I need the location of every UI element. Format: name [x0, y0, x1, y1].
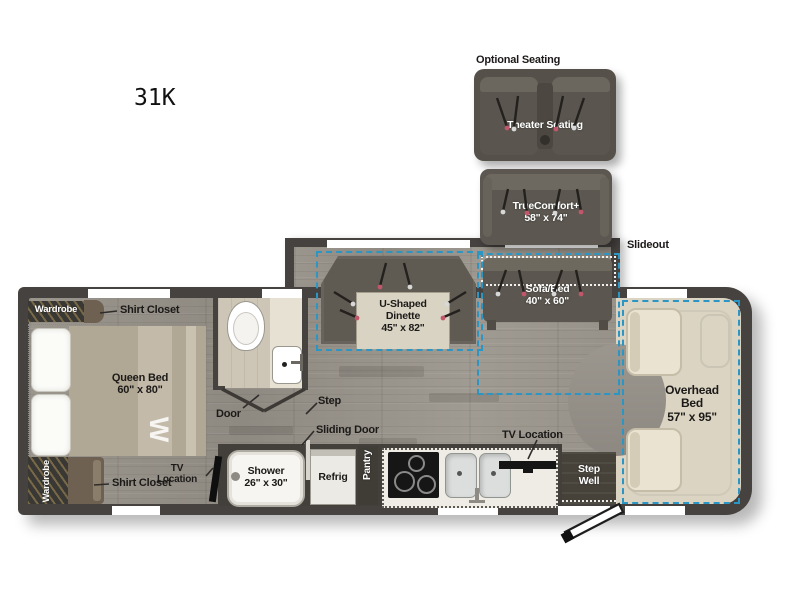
tv-location-kitchen-label: TV Location — [502, 429, 563, 441]
tv-kitchen — [499, 461, 556, 469]
step-well-label: Step Well — [562, 464, 616, 488]
toilet — [227, 301, 265, 351]
pillow — [31, 328, 71, 392]
window-slideout-left — [327, 240, 470, 248]
step-well: Step Well — [562, 452, 616, 504]
window-top-cab — [627, 289, 687, 298]
step-label: Step — [318, 395, 341, 407]
queen-bed-label: Queen Bed 60" x 80" — [80, 372, 200, 397]
sofa-slide-outline — [477, 253, 620, 395]
theater-seating: Theater Seating — [474, 69, 616, 161]
truecomfort-label: TrueComfort+ 58" x 74" — [480, 201, 612, 225]
shower-label: Shower 26" x 30" — [229, 466, 303, 490]
bath-wall-bottom — [213, 386, 225, 390]
overhead-bed-label: Overhead Bed 57" x 95" — [640, 384, 744, 424]
shirt-closet-bottom-cabinet — [68, 457, 104, 504]
optional-seating-heading: Optional Seating — [476, 54, 560, 66]
refrigerator: Refrig — [310, 449, 356, 505]
pantry: Pantry — [358, 446, 378, 505]
wardrobe-top: Wardrobe — [28, 301, 84, 322]
theater-seat-left — [480, 77, 538, 155]
wardrobe-top-label: Wardrobe — [28, 305, 84, 316]
refrig-label: Refrig — [311, 472, 355, 484]
pantry-label: Pantry — [362, 450, 373, 480]
sliding-door-label: Sliding Door — [316, 424, 379, 436]
sliding-door — [305, 440, 310, 480]
window-top-bedroom — [88, 289, 170, 298]
bath-wall-right — [302, 298, 308, 390]
window-bottom-cab — [625, 506, 685, 515]
theater-seating-label: Theater Seating — [474, 120, 616, 132]
dinette-slide-outline — [316, 251, 483, 351]
kitchen-sink-left — [445, 453, 477, 498]
kitchen-sink-right — [479, 453, 511, 498]
pillow — [31, 394, 71, 456]
wardrobe-bottom-label: Wardrobe — [42, 460, 53, 502]
theater-seat-right — [552, 77, 610, 155]
floorplan-page: 31K Optional Seating Theater Seating Tru… — [0, 0, 800, 600]
window-bottom-bedroom — [112, 506, 160, 515]
bed-monogram: W — [143, 417, 174, 442]
shirt-closet-top-label: Shirt Closet — [120, 304, 179, 316]
kitchen-counter — [382, 448, 558, 508]
truecomfort-sofa: TrueComfort+ 58" x 74" — [480, 169, 612, 245]
door-label: Door — [216, 408, 241, 420]
shirt-closet-top-cabinet — [84, 300, 104, 323]
shower: Shower 26" x 30" — [227, 450, 305, 507]
entry-door-opening — [558, 506, 610, 515]
slideout-label: Slideout — [627, 239, 669, 251]
floorplan-title: 31K — [134, 85, 176, 111]
wardrobe-bottom: Wardrobe — [28, 457, 68, 504]
theater-console — [537, 83, 553, 149]
tv-location-bedroom-label: TV Location — [148, 463, 206, 485]
window-top-bath — [262, 289, 302, 298]
bath-wall-left — [213, 298, 218, 390]
bath-sink — [272, 346, 302, 384]
cooktop — [388, 452, 439, 498]
